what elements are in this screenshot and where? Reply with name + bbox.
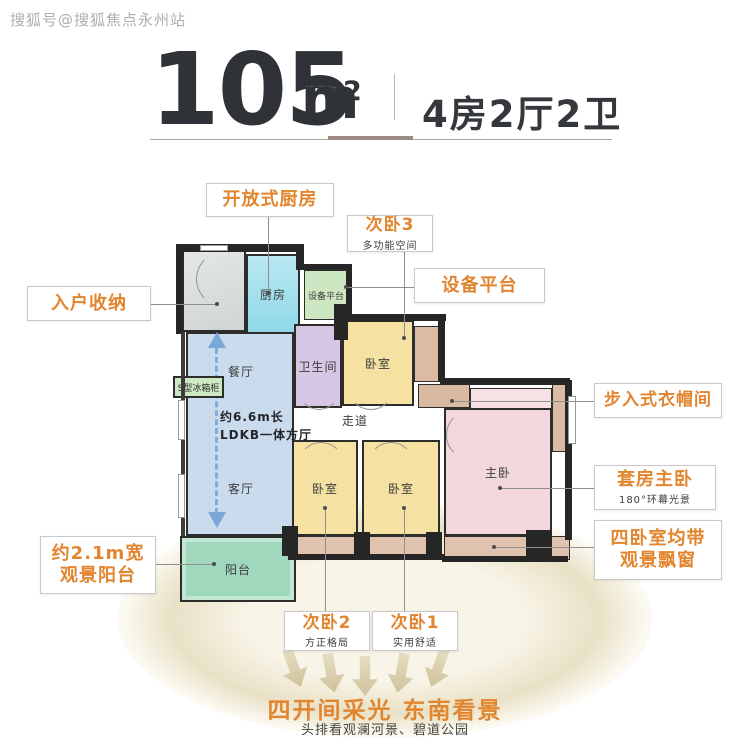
flow-arrow-down-icon — [208, 512, 226, 528]
connector-line — [494, 547, 594, 548]
connector-dot — [402, 336, 406, 340]
connector-dot — [212, 562, 216, 566]
connector-dot — [402, 506, 406, 510]
callout-subtitle: 180°环幕光景 — [619, 491, 691, 506]
callout-title: 开放式厨房 — [223, 189, 318, 211]
wall — [336, 314, 446, 321]
connector-line — [325, 510, 326, 611]
area-exponent: 2 — [343, 76, 362, 107]
wall — [438, 318, 445, 382]
connector-dot — [450, 399, 454, 403]
callout-bedroom2: 次卧2 方正格局 — [284, 611, 370, 651]
door-arc — [368, 442, 414, 488]
room-kitchen: 厨房 — [246, 254, 300, 334]
flow-arrow-up-icon — [208, 332, 226, 348]
connector-dot — [344, 285, 348, 289]
wall — [282, 526, 298, 556]
callout-bedroom1: 次卧1 实用舒适 — [372, 611, 458, 651]
room-label-living: 客厅 — [228, 480, 254, 497]
connector-line — [151, 304, 217, 305]
callout-bedroom3: 次卧3 多功能空间 — [347, 215, 433, 252]
wall — [176, 244, 183, 334]
callout-view-balcony: 约2.1m宽 观景阳台 — [40, 536, 156, 594]
callout-title: 设备平台 — [442, 275, 518, 297]
room-label: 主卧 — [485, 464, 511, 481]
callout-title: 次卧1 — [391, 613, 440, 633]
callout-line1: 约2.1m宽 — [52, 543, 145, 565]
wall — [334, 304, 348, 340]
wall — [440, 378, 570, 385]
title-underline-accent — [328, 136, 413, 140]
watermark-text: 搜狐号@搜狐焦点永州站 — [10, 9, 186, 30]
connector-line — [500, 488, 594, 489]
callout-equipment-platform: 设备平台 — [414, 268, 545, 303]
room-label-corridor: 走道 — [342, 412, 368, 429]
callout-master-suite: 套房主卧 180°环幕光景 — [594, 465, 716, 510]
door-arc — [446, 410, 496, 460]
wall — [442, 556, 568, 562]
connector-dot — [323, 506, 327, 510]
flow-arrow-line — [215, 348, 218, 514]
connector-line — [404, 510, 405, 611]
wall — [176, 244, 304, 252]
connector-line — [268, 217, 269, 293]
connector-dot — [492, 545, 496, 549]
footer-subline: 头排看观澜河景、碧道公园 — [155, 719, 615, 738]
door-arc — [348, 364, 394, 410]
callout-line1: 四卧室均带 — [611, 528, 706, 550]
room-balcony: 阳台 — [180, 536, 296, 602]
wall — [426, 532, 442, 558]
wall — [354, 532, 370, 558]
window — [200, 245, 228, 251]
callout-title: 套房主卧 — [617, 469, 693, 491]
callout-entry-storage: 入户收纳 — [27, 286, 151, 321]
callout-title: 入户收纳 — [51, 293, 127, 315]
connector-line — [346, 287, 414, 288]
room-label: 设备平台 — [308, 289, 344, 302]
room-label: 厨房 — [260, 286, 286, 303]
door-arc — [298, 368, 340, 410]
room-label: 阳台 — [225, 561, 251, 578]
room-label-dining: 餐厅 — [228, 363, 254, 380]
connector-line — [404, 251, 405, 338]
callout-bay-windows: 四卧室均带 观景飘窗 — [594, 520, 722, 580]
window — [568, 396, 576, 444]
callout-title: 次卧3 — [366, 215, 415, 235]
door-arc — [298, 442, 344, 488]
connector-dot — [266, 291, 270, 295]
callout-open-kitchen: 开放式厨房 — [206, 183, 334, 217]
connector-dot — [215, 302, 219, 306]
callout-title: 步入式衣帽间 — [604, 390, 712, 410]
layout-text: 4房2厅2卫 — [422, 84, 622, 138]
window — [178, 474, 185, 518]
ldkb-annotation: 约6.6m长 LDKB一体方厅 — [220, 408, 312, 444]
wall — [300, 264, 352, 270]
connector-line — [156, 564, 214, 565]
callout-line2: 观景阳台 — [60, 565, 136, 587]
callout-line2: 观景飘窗 — [620, 550, 696, 572]
callout-title: 次卧2 — [303, 613, 352, 633]
wall — [526, 530, 552, 556]
connector-line — [452, 401, 594, 402]
walk-in-closet — [418, 384, 470, 408]
callout-subtitle: 实用舒适 — [393, 634, 437, 649]
window — [178, 400, 185, 440]
callout-walk-in-closet: 步入式衣帽间 — [594, 383, 722, 418]
callout-subtitle: 方正格局 — [305, 634, 349, 649]
callout-subtitle: 多功能空间 — [363, 237, 418, 252]
door-arc — [196, 252, 250, 306]
title-divider — [394, 74, 395, 120]
ldkb-line1: 约6.6m长 — [220, 408, 312, 426]
connector-dot — [498, 486, 502, 490]
